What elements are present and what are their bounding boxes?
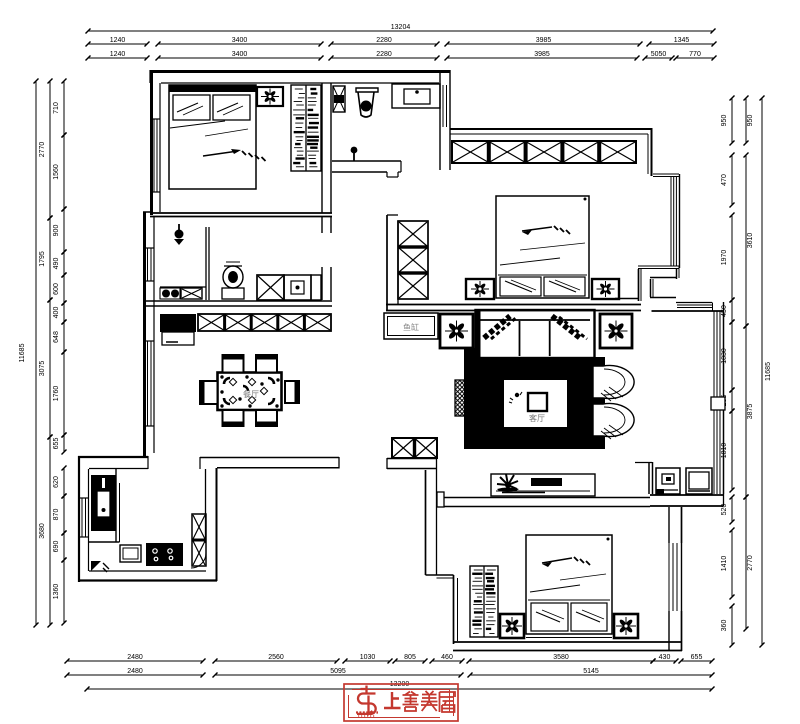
- svg-text:1410: 1410: [721, 556, 728, 572]
- svg-text:2280: 2280: [376, 37, 392, 44]
- svg-text:鱼缸: 鱼缸: [403, 322, 419, 332]
- svg-text:950: 950: [721, 115, 728, 127]
- svg-text:13204: 13204: [391, 24, 411, 31]
- svg-text:11685: 11685: [19, 343, 26, 362]
- svg-text:1240: 1240: [110, 37, 126, 44]
- svg-text:1560: 1560: [53, 164, 60, 180]
- svg-text:900: 900: [53, 225, 60, 237]
- svg-text:3400: 3400: [232, 51, 248, 58]
- svg-text:2770: 2770: [39, 142, 46, 158]
- svg-text:餐厅: 餐厅: [243, 390, 259, 399]
- svg-text:2480: 2480: [127, 654, 143, 661]
- svg-text:1345: 1345: [674, 37, 690, 44]
- svg-text:3075: 3075: [39, 361, 46, 377]
- svg-text:2560: 2560: [268, 654, 284, 661]
- svg-text:1760: 1760: [53, 386, 60, 402]
- svg-text:400: 400: [53, 307, 60, 319]
- svg-text:1830: 1830: [721, 348, 728, 364]
- svg-text:460: 460: [441, 654, 453, 661]
- svg-text:3400: 3400: [232, 37, 248, 44]
- svg-text:770: 770: [689, 51, 701, 58]
- svg-text:1240: 1240: [110, 51, 126, 58]
- svg-text:5145: 5145: [583, 668, 599, 675]
- svg-text:2770: 2770: [747, 555, 754, 571]
- svg-text:1030: 1030: [360, 654, 376, 661]
- svg-text:3580: 3580: [553, 654, 569, 661]
- svg-text:600: 600: [53, 283, 60, 295]
- svg-text:655: 655: [691, 654, 703, 661]
- svg-text:430: 430: [659, 654, 671, 661]
- svg-text:950: 950: [747, 115, 754, 127]
- svg-text:1810: 1810: [721, 443, 728, 459]
- svg-text:805: 805: [404, 654, 416, 661]
- svg-text:3610: 3610: [747, 233, 754, 249]
- svg-text:1795: 1795: [39, 251, 46, 267]
- svg-text:3680: 3680: [39, 523, 46, 539]
- svg-text:648: 648: [53, 331, 60, 343]
- svg-text:1970: 1970: [721, 250, 728, 266]
- svg-text:690: 690: [53, 541, 60, 553]
- svg-text:710: 710: [53, 102, 60, 114]
- svg-text:5095: 5095: [330, 668, 346, 675]
- svg-text:2280: 2280: [376, 51, 392, 58]
- svg-text:490: 490: [53, 258, 60, 270]
- svg-text:5050: 5050: [651, 51, 667, 58]
- svg-text:1360: 1360: [53, 584, 60, 600]
- svg-text:客厅: 客厅: [529, 413, 545, 423]
- svg-text:360: 360: [721, 620, 728, 632]
- svg-text:620: 620: [53, 476, 60, 488]
- svg-text:870: 870: [53, 509, 60, 521]
- svg-text:3985: 3985: [534, 51, 550, 58]
- svg-text:3985: 3985: [536, 37, 552, 44]
- svg-text:3875: 3875: [747, 404, 754, 420]
- svg-text:2480: 2480: [127, 668, 143, 675]
- svg-text:11685: 11685: [765, 362, 772, 381]
- svg-text:470: 470: [721, 174, 728, 186]
- svg-text:655: 655: [53, 438, 60, 450]
